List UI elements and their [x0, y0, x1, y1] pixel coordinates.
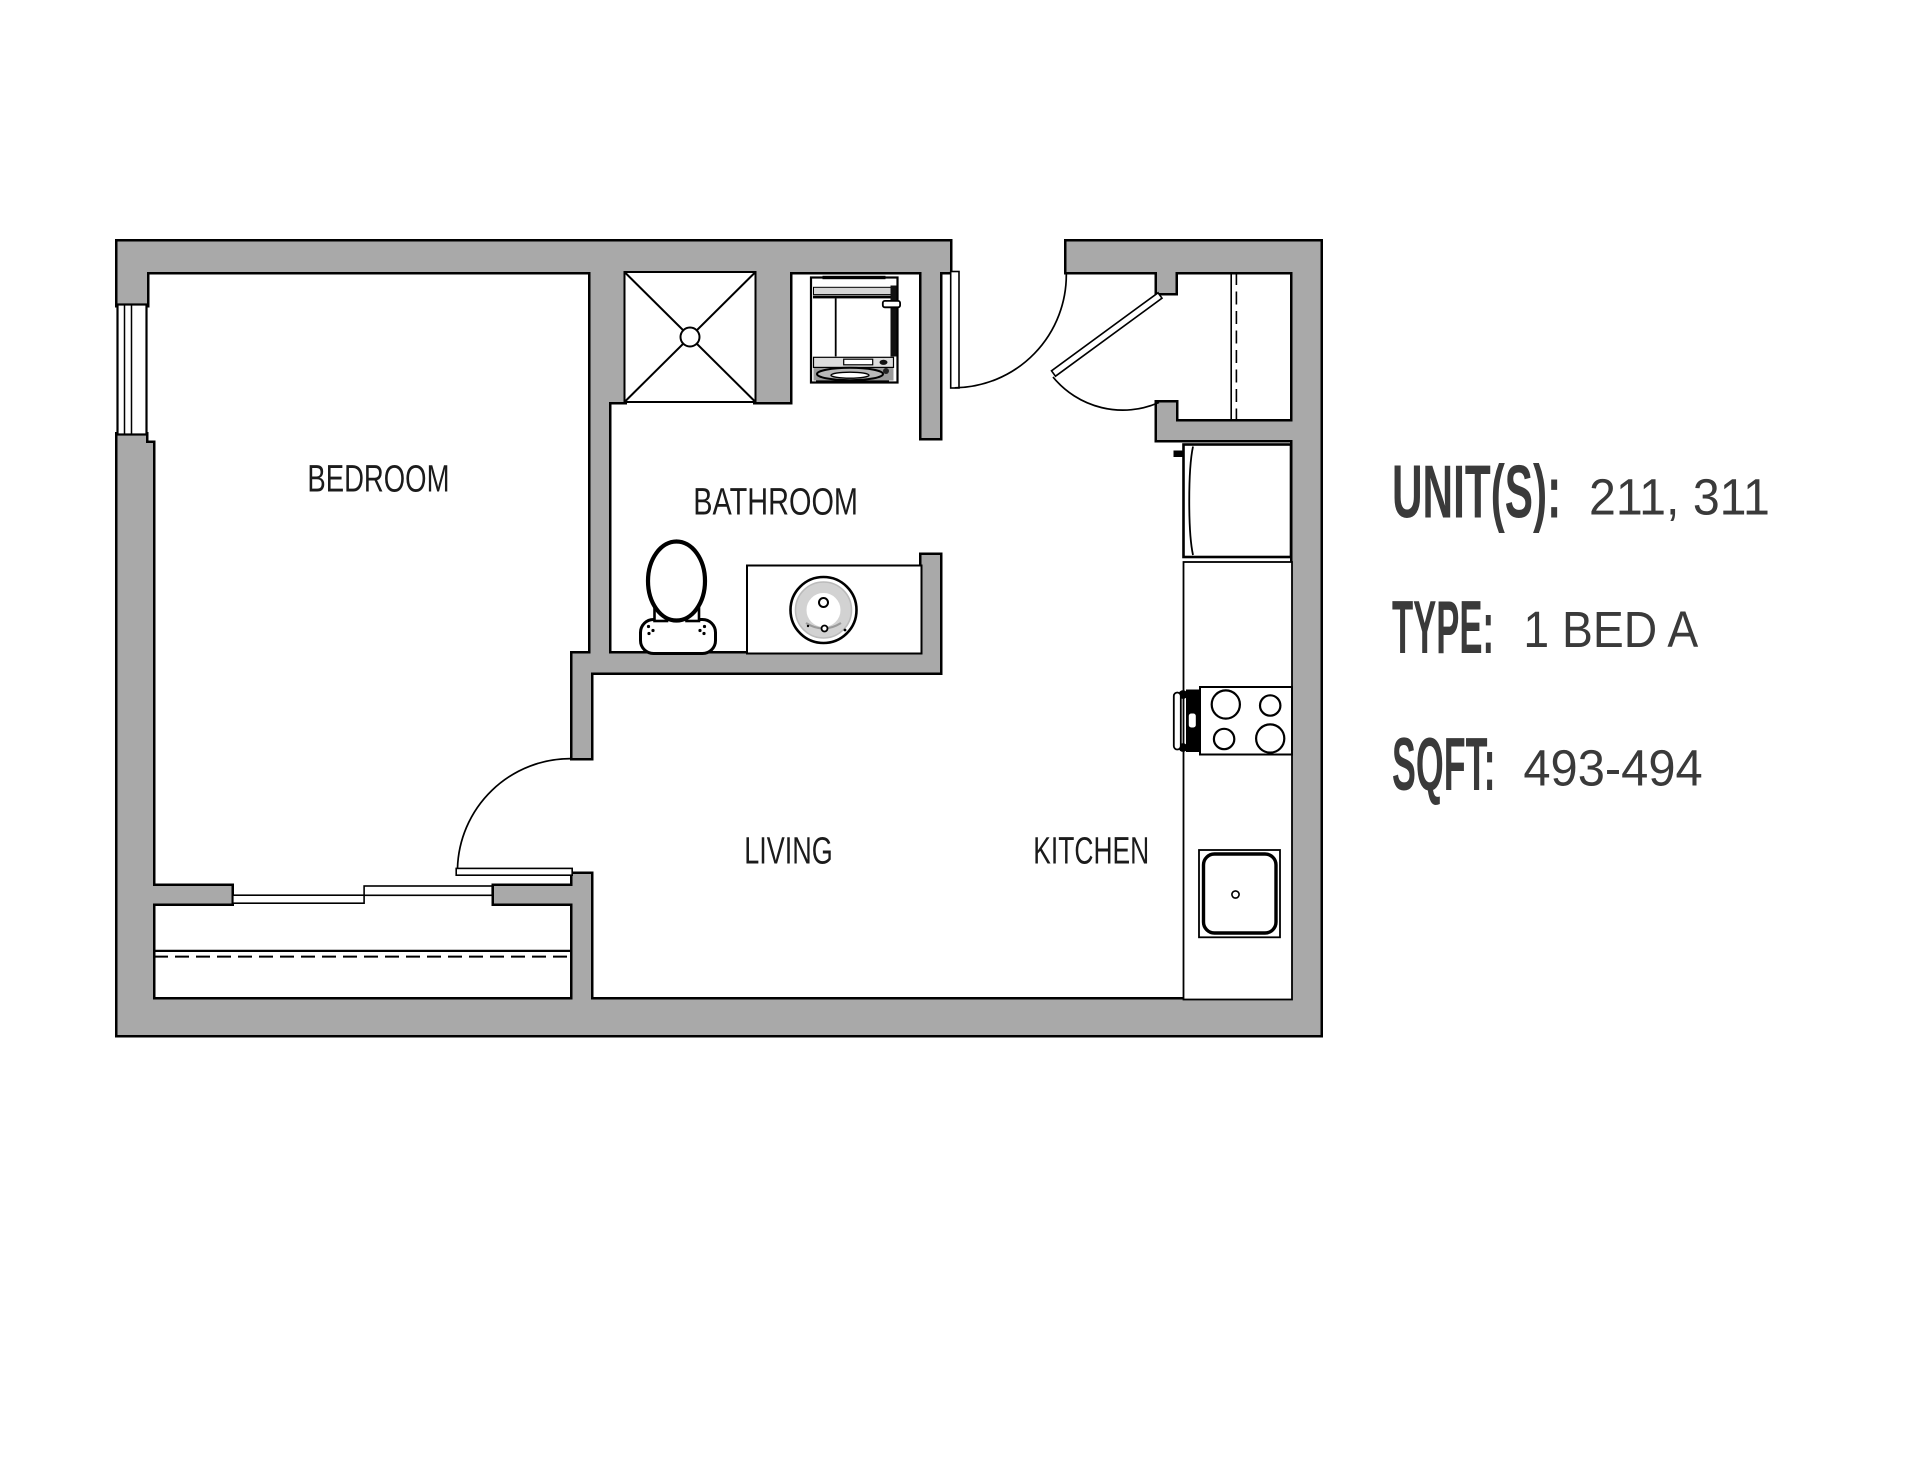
svg-text:BEDROOM: BEDROOM	[307, 459, 449, 501]
svg-text:BATHROOM: BATHROOM	[693, 481, 858, 523]
svg-text:KITCHEN: KITCHEN	[1033, 831, 1149, 873]
svg-text:493-494: 493-494	[1523, 740, 1702, 797]
svg-text:LIVING: LIVING	[744, 831, 833, 873]
svg-text:211, 311: 211, 311	[1589, 468, 1770, 525]
svg-text:SQFT:: SQFT:	[1392, 722, 1496, 806]
svg-text:TYPE:: TYPE:	[1392, 585, 1494, 669]
svg-text:UNIT(S):: UNIT(S):	[1392, 449, 1561, 533]
svg-text:1 BED A: 1 BED A	[1523, 601, 1698, 658]
